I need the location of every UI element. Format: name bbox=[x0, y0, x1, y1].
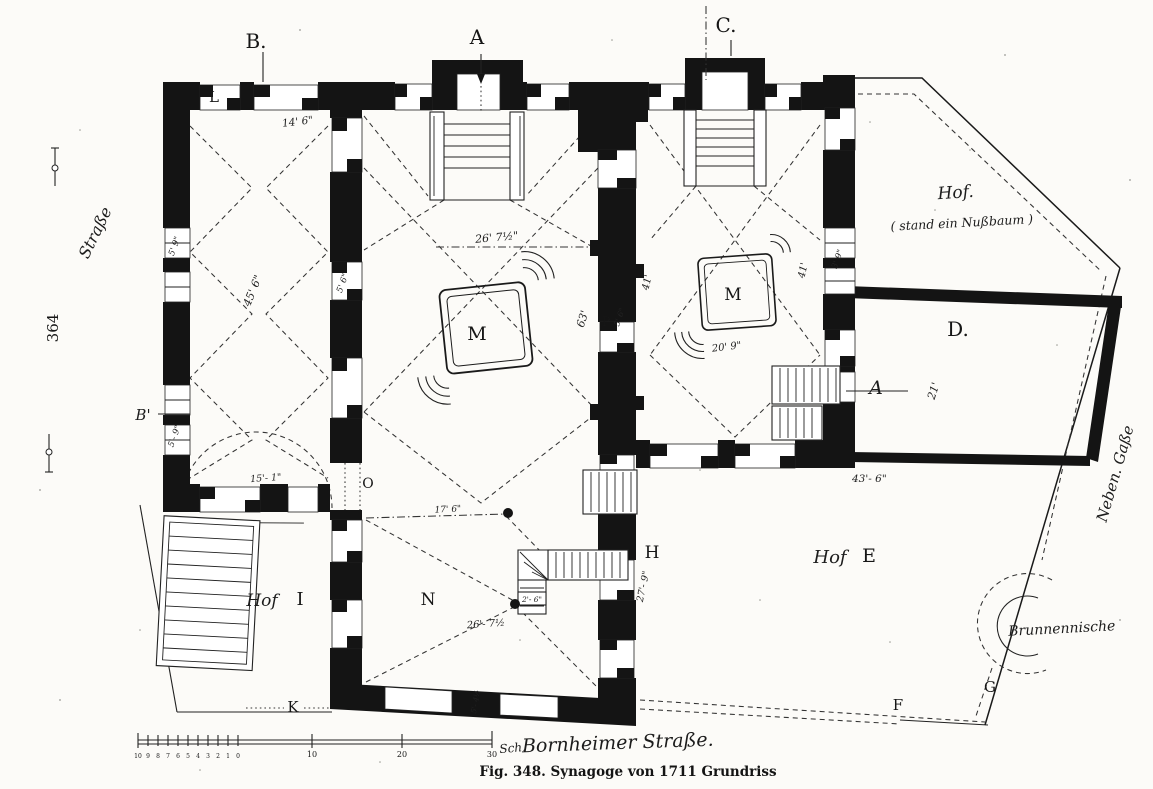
point-letter-g: G bbox=[984, 678, 996, 696]
room-d-south-wall bbox=[850, 452, 1090, 466]
dim-main-hall-width: 26' 7½" bbox=[474, 229, 519, 246]
room-letter-d: D. bbox=[947, 317, 969, 341]
room-letter-b-prime: B' bbox=[134, 406, 150, 424]
page-number: 364 bbox=[44, 314, 62, 343]
scale-major-30: 30 bbox=[487, 750, 497, 759]
scale-fine-10: 0 bbox=[236, 753, 240, 760]
hof-i-prefix: Hof bbox=[245, 591, 280, 611]
hof-top-title: Hof. bbox=[936, 182, 974, 205]
scale-fine-8: 2 bbox=[216, 753, 220, 760]
scale-major-10: 10 bbox=[307, 750, 317, 759]
hof-top-note: ( stand ein Nußbaum ) bbox=[890, 211, 1033, 233]
dim-n-stair: 2'- 6" bbox=[521, 595, 542, 604]
scale-fine-5: 5 bbox=[186, 753, 190, 760]
hof-top-outline bbox=[855, 78, 1120, 268]
room-letter-p: P bbox=[602, 315, 611, 330]
stair-main-hall-north bbox=[430, 112, 524, 200]
room-letter-h: H bbox=[645, 543, 660, 563]
scale-bar bbox=[138, 731, 492, 748]
street-label-bottom: Bornheimer Straße. bbox=[521, 729, 714, 758]
scale-fine-2: 8 bbox=[156, 753, 160, 760]
hof-e-letter: E bbox=[862, 545, 876, 567]
margin-marks bbox=[45, 148, 59, 472]
scale-major-20: 20 bbox=[397, 750, 407, 759]
scanned-floor-plan-page: 364 Straße B. A C. L 14' 6" 45' 6" 5' 9"… bbox=[0, 0, 1153, 789]
masonry-walls bbox=[163, 58, 1122, 726]
dim-room-d-width: 21' bbox=[925, 381, 943, 402]
dim-right-hall-width: 20' 9" bbox=[710, 340, 742, 355]
point-letter-f: F bbox=[893, 696, 903, 714]
scale-fine-3: 7 bbox=[166, 753, 170, 760]
door-letter-a: A bbox=[867, 377, 883, 399]
dim-top-left-bay: 14' 6" bbox=[281, 114, 313, 130]
room-letter-o: O bbox=[362, 476, 373, 492]
scale-fine-0: 10 bbox=[134, 753, 142, 760]
bimah-letter-m-right: M bbox=[724, 285, 741, 305]
figure-caption: Fig. 348. Synagoge von 1711 Grundriss bbox=[479, 764, 777, 780]
room-d-north-wall bbox=[846, 286, 1122, 308]
point-letter-k: K bbox=[287, 698, 299, 716]
section-marker-b: B. bbox=[245, 29, 266, 53]
dim-h-wall: 27'- 9" bbox=[635, 570, 652, 604]
street-label-left: Straße bbox=[75, 204, 116, 262]
scale-fine-6: 4 bbox=[196, 753, 200, 760]
section-marker-a: A bbox=[469, 25, 485, 49]
dim-right-hall-length-w: 41' bbox=[640, 274, 654, 292]
well-niche-label: Brunnennische bbox=[1007, 618, 1116, 640]
scale-fine-4: 6 bbox=[176, 753, 180, 760]
section-marker-c: C. bbox=[716, 13, 737, 37]
bimah-letter-m-main: M bbox=[467, 323, 486, 345]
room-letter-l: L bbox=[209, 88, 219, 106]
stair-hof-i bbox=[156, 516, 304, 673]
scale-fine-7: 3 bbox=[206, 753, 210, 760]
floor-plan-drawing: 364 Straße B. A C. L 14' 6" 45' 6" 5' 9"… bbox=[0, 0, 1153, 789]
hof-i-letter: I bbox=[296, 589, 303, 610]
dim-left-hall-length: 45' 6" bbox=[240, 273, 265, 309]
room-letter-n: N bbox=[421, 590, 436, 610]
stair-right-hall-north bbox=[684, 110, 766, 186]
portal-a-opening bbox=[457, 74, 500, 110]
dim-right-hall-length-e: 41' bbox=[796, 262, 810, 280]
scale-fine-9: 1 bbox=[226, 753, 230, 760]
dim-n-room-width: 26'- 7½ bbox=[465, 618, 505, 632]
portal-c-opening bbox=[702, 72, 748, 110]
scale-fine-1: 9 bbox=[146, 753, 150, 760]
stair-through-spine bbox=[583, 470, 637, 514]
dim-left-hall-width: 15'- 1" bbox=[250, 472, 282, 485]
dim-main-hall-length: 63' bbox=[574, 309, 592, 329]
hof-e-prefix: Hof bbox=[812, 547, 850, 568]
dim-hof-e-top: 43'- 6" bbox=[851, 473, 887, 485]
dim-n-room-top: 17' 6" bbox=[434, 504, 461, 515]
